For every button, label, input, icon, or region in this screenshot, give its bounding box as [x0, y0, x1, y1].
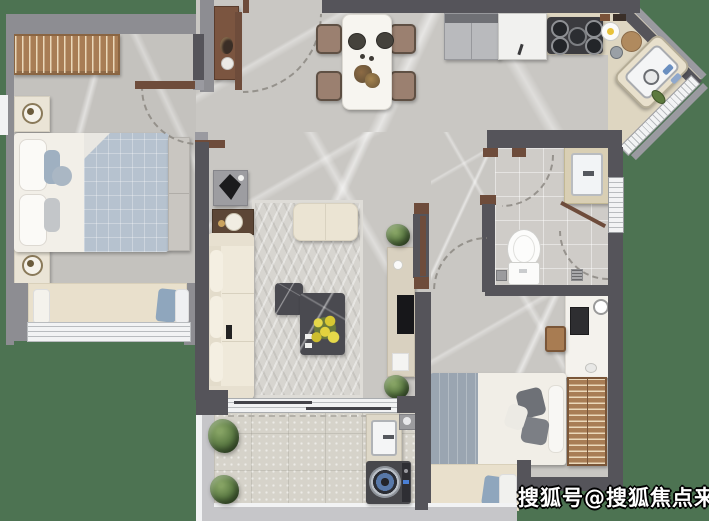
washing-machine	[366, 461, 411, 504]
sideboard	[213, 170, 248, 206]
plant	[208, 419, 239, 453]
pillow	[175, 289, 189, 324]
wall-kitchen-bath	[487, 130, 622, 148]
sofa	[207, 233, 254, 400]
laundry-counter	[366, 414, 402, 463]
cutting-board	[621, 31, 642, 52]
bowl-icon	[221, 57, 234, 70]
cushion-seam	[222, 293, 254, 294]
wall-master-living	[195, 142, 209, 400]
desk	[565, 291, 610, 378]
decor-dot	[238, 175, 244, 181]
exterior-band-top	[6, 14, 196, 34]
small-cup-icon	[360, 54, 365, 59]
media-box	[392, 353, 409, 371]
master-bed	[14, 133, 169, 252]
balcony-sliding-door	[228, 399, 397, 412]
fridge-divider	[471, 23, 472, 59]
centerpiece-flowers	[365, 73, 380, 88]
plate-icon	[376, 32, 394, 49]
dining-chair	[316, 71, 342, 101]
nightstand	[14, 248, 50, 284]
egg-icon	[607, 28, 614, 35]
dining-chair	[316, 24, 342, 54]
toilet-seat	[513, 235, 535, 263]
blanket	[430, 373, 478, 465]
hall-door-jamb	[414, 277, 429, 289]
burner-icon	[551, 37, 569, 55]
breakfast-plate	[601, 22, 620, 41]
entry-door-panel	[235, 12, 242, 90]
lamp-icon	[27, 260, 34, 267]
bathroom-window	[609, 178, 623, 232]
hall-door-panel	[420, 216, 426, 276]
spice-box	[600, 14, 610, 21]
sliding-panel	[306, 407, 391, 410]
master-bay-seat	[28, 283, 187, 327]
floor-drain-icon	[496, 270, 507, 281]
decor-dot	[393, 260, 403, 270]
floor-drain-icon	[571, 269, 583, 281]
sliding-panel	[234, 401, 312, 404]
washer-drum-icon	[369, 466, 401, 498]
small-cup-icon	[369, 56, 374, 61]
back-cushion	[210, 250, 223, 292]
watermark: 搜狐号@搜狐焦点来宾站	[518, 482, 709, 512]
foot-bench	[168, 137, 190, 251]
cushion-seam	[222, 341, 254, 342]
drain-circle	[403, 417, 411, 425]
washer-knob-icon	[404, 469, 408, 473]
cup-icon	[585, 363, 597, 373]
faucet-icon	[583, 171, 594, 176]
left-window-sliver	[0, 95, 8, 135]
wall-balcony-corner	[196, 390, 228, 415]
tv-console	[387, 247, 415, 377]
floor-plan-canvas: 搜狐号@搜狐焦点来宾站	[0, 0, 709, 521]
bath-door-jamb	[483, 148, 498, 157]
side-table	[212, 209, 254, 235]
dining-table	[342, 14, 392, 110]
cabinet-handle-icon	[517, 44, 523, 55]
decor-dot	[218, 220, 225, 227]
master-bay-window	[28, 323, 190, 341]
lamp-icon	[27, 108, 34, 115]
kettle	[610, 46, 623, 59]
wall-bay-cap	[517, 460, 531, 480]
burner-icon	[585, 37, 603, 55]
background-right-strip	[623, 152, 709, 521]
plate-icon	[348, 33, 366, 50]
flush-button-icon	[519, 269, 527, 273]
bedroom2-bay-band	[428, 507, 517, 521]
desk-chair	[545, 326, 566, 352]
center-grate-icon	[568, 27, 587, 46]
back-cushion	[210, 296, 223, 338]
toilet	[507, 229, 539, 284]
fridge-top-strip	[445, 14, 499, 23]
master-door-panel	[135, 81, 195, 89]
duvet-fold	[84, 133, 110, 159]
entry-door-jamb	[243, 0, 249, 13]
exterior-band-left	[6, 14, 14, 345]
sofa-arm	[207, 233, 254, 246]
gas-stove	[547, 17, 603, 54]
dining-chair	[390, 71, 416, 101]
spice-box	[613, 14, 626, 21]
round-pillow	[52, 166, 72, 186]
single-bed	[430, 373, 566, 465]
wall-bedroom2-top	[485, 285, 623, 296]
back-cushion	[210, 342, 223, 382]
bathroom-vanity	[564, 146, 610, 204]
plant	[386, 224, 410, 246]
monitor-icon	[570, 307, 589, 335]
lamp-icon	[225, 213, 243, 231]
wall-master-right-upper	[193, 34, 204, 80]
wardrobe-divider	[587, 379, 588, 464]
second-wardrobe	[567, 377, 607, 466]
floor-drain-icon	[399, 414, 416, 430]
coffee-table	[275, 283, 303, 315]
nightstand	[14, 96, 50, 132]
kitchen-cabinet	[498, 13, 547, 60]
ottoman	[293, 203, 358, 241]
remote-icon	[226, 325, 232, 339]
accent-pillow	[44, 198, 60, 232]
balcony-bottom-rail	[202, 507, 428, 521]
yellow-flowers	[308, 312, 342, 348]
pillow	[548, 385, 564, 453]
pillow	[19, 139, 47, 191]
master-wardrobe	[13, 34, 120, 75]
bench-seam	[169, 193, 189, 194]
vase-icon	[220, 37, 233, 54]
faucet-icon	[383, 435, 394, 439]
washer-light-icon	[403, 480, 409, 484]
burner-icon	[551, 20, 569, 38]
desk-lamp-icon	[593, 299, 609, 315]
pillow	[33, 289, 50, 324]
tv-icon	[397, 295, 414, 334]
plant	[210, 475, 239, 504]
ottoman-seam	[325, 204, 326, 240]
toilet-tank	[508, 262, 540, 285]
washer-panel	[402, 463, 410, 502]
wall-balcony-right-block	[397, 396, 428, 413]
wall-top	[322, 0, 640, 13]
wall-bedroom2-right	[608, 288, 623, 480]
fridge	[444, 13, 500, 60]
pillow	[19, 194, 47, 246]
